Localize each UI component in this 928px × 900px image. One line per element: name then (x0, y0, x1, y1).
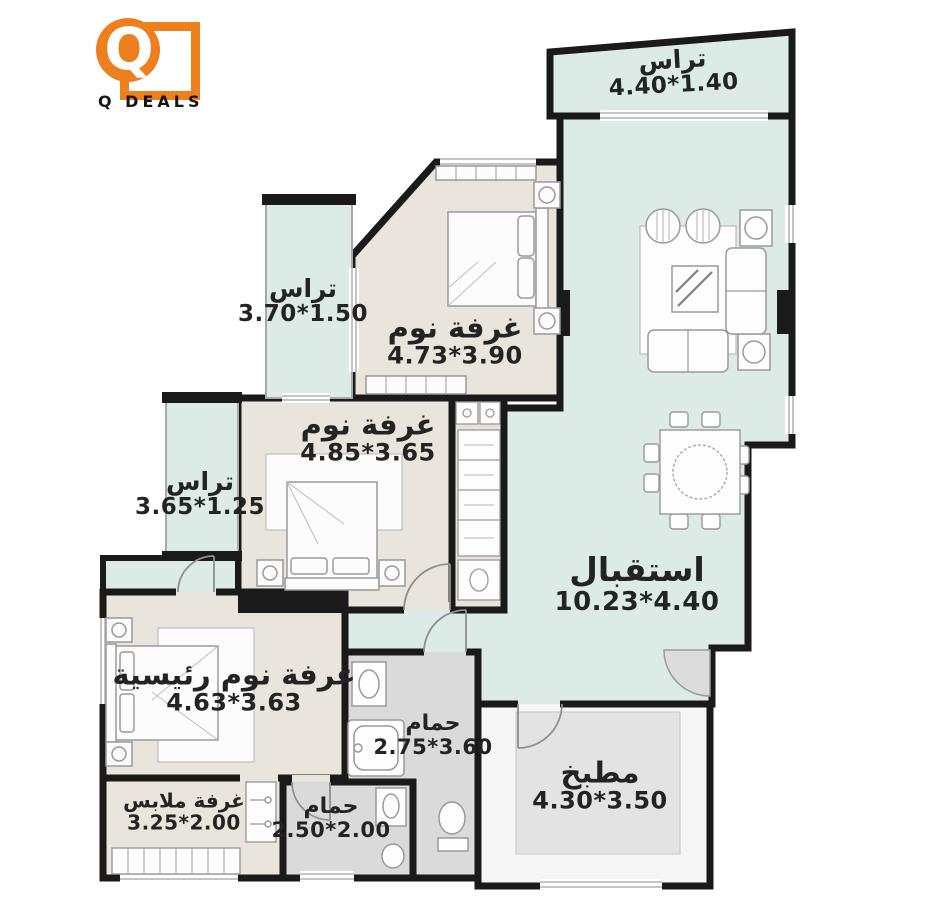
bedroom2-furniture (257, 454, 405, 590)
bedroom2-label: غرفة نوم 4.85*3.65 (300, 409, 435, 466)
utility-fixtures (456, 402, 500, 600)
bathroom2-label: حمام 2.50*2.00 (271, 795, 390, 841)
dining-set (644, 412, 749, 529)
master-bedroom-label: غرفة نوم رئيسية 4.63*3.63 (112, 659, 355, 716)
kitchen-label: مطبخ 4.30*3.50 (532, 757, 667, 814)
toilet (439, 802, 465, 834)
living-room-set (640, 209, 772, 372)
floorplan-drawing (0, 0, 928, 900)
dressing-label: غرفة ملابس 3.25*2.00 (123, 790, 245, 833)
wardrobe (366, 376, 466, 394)
terrace-upper-left-label: تراس 3.70*1.50 (238, 275, 368, 327)
floorplan-canvas: تراس 4.40*1.40 غرفة نوم 4.73*3.90 تراس 3… (0, 0, 928, 900)
hall-sliver-floor (103, 558, 238, 592)
reception-label: استقبال 10.23*4.40 (555, 552, 720, 616)
toilet (382, 844, 404, 868)
terrace-top-label: تراس 4.40*1.40 (607, 43, 740, 102)
closet (436, 166, 536, 180)
brand-name: Q DEALS (98, 92, 203, 111)
bathroom1-label: حمام 2.75*3.60 (373, 712, 492, 758)
terrace-lower-left-label: تراس 3.65*1.25 (135, 468, 265, 520)
logo-q-icon: Q (96, 18, 162, 82)
bedroom1-label: غرفة نوم 4.73*3.90 (387, 312, 522, 369)
qdeals-logo: Q Q DEALS (48, 8, 208, 108)
